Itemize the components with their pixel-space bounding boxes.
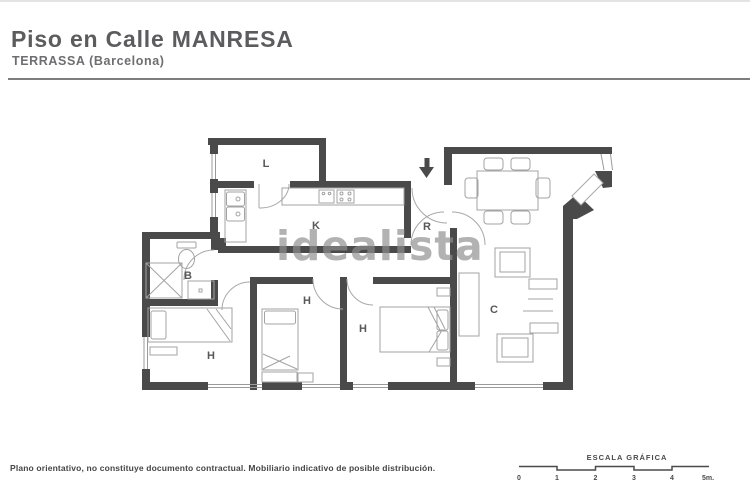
floorplan-page: Piso en Calle MANRESA TERRASSA (Barcelon… <box>0 0 750 500</box>
scale-title: ESCALA GRÁFICA <box>587 453 668 462</box>
disclaimer-text: Plano orientativo, no constituye documen… <box>10 463 435 473</box>
bathroom-fixtures <box>146 242 214 299</box>
laundry-appliances <box>225 190 246 242</box>
bedroom1-bed <box>148 308 232 355</box>
bedroom3-bed <box>380 288 450 366</box>
scale-graphic: ESCALA GRÁFICA 0 1 2 3 4 5m. <box>517 453 714 482</box>
watermark: idealista <box>276 226 484 267</box>
room-label-bedroom1: H <box>207 350 215 362</box>
room-label-bedroom2: H <box>303 295 311 307</box>
room-label-living: C <box>490 304 498 316</box>
scale-tick-label: 0 <box>517 475 521 482</box>
furniture <box>146 158 558 382</box>
scale-tick-label: 1 <box>555 475 559 482</box>
room-label-bathroom: B <box>184 270 192 282</box>
room-label-laundry: L <box>263 158 270 170</box>
scale-tick-label: 5m. <box>702 475 714 482</box>
entrance-arrow-icon <box>419 158 434 178</box>
room-label-bedroom3: H <box>359 323 367 335</box>
bedroom2-bed <box>262 309 313 382</box>
scale-tick-label: 3 <box>632 475 636 482</box>
scale-tick-label: 2 <box>594 475 598 482</box>
scale-tick-label: 4 <box>670 475 674 482</box>
dining-table-and-chairs <box>465 158 550 224</box>
scale-bar <box>519 467 709 471</box>
kitchen-counter <box>282 188 404 205</box>
